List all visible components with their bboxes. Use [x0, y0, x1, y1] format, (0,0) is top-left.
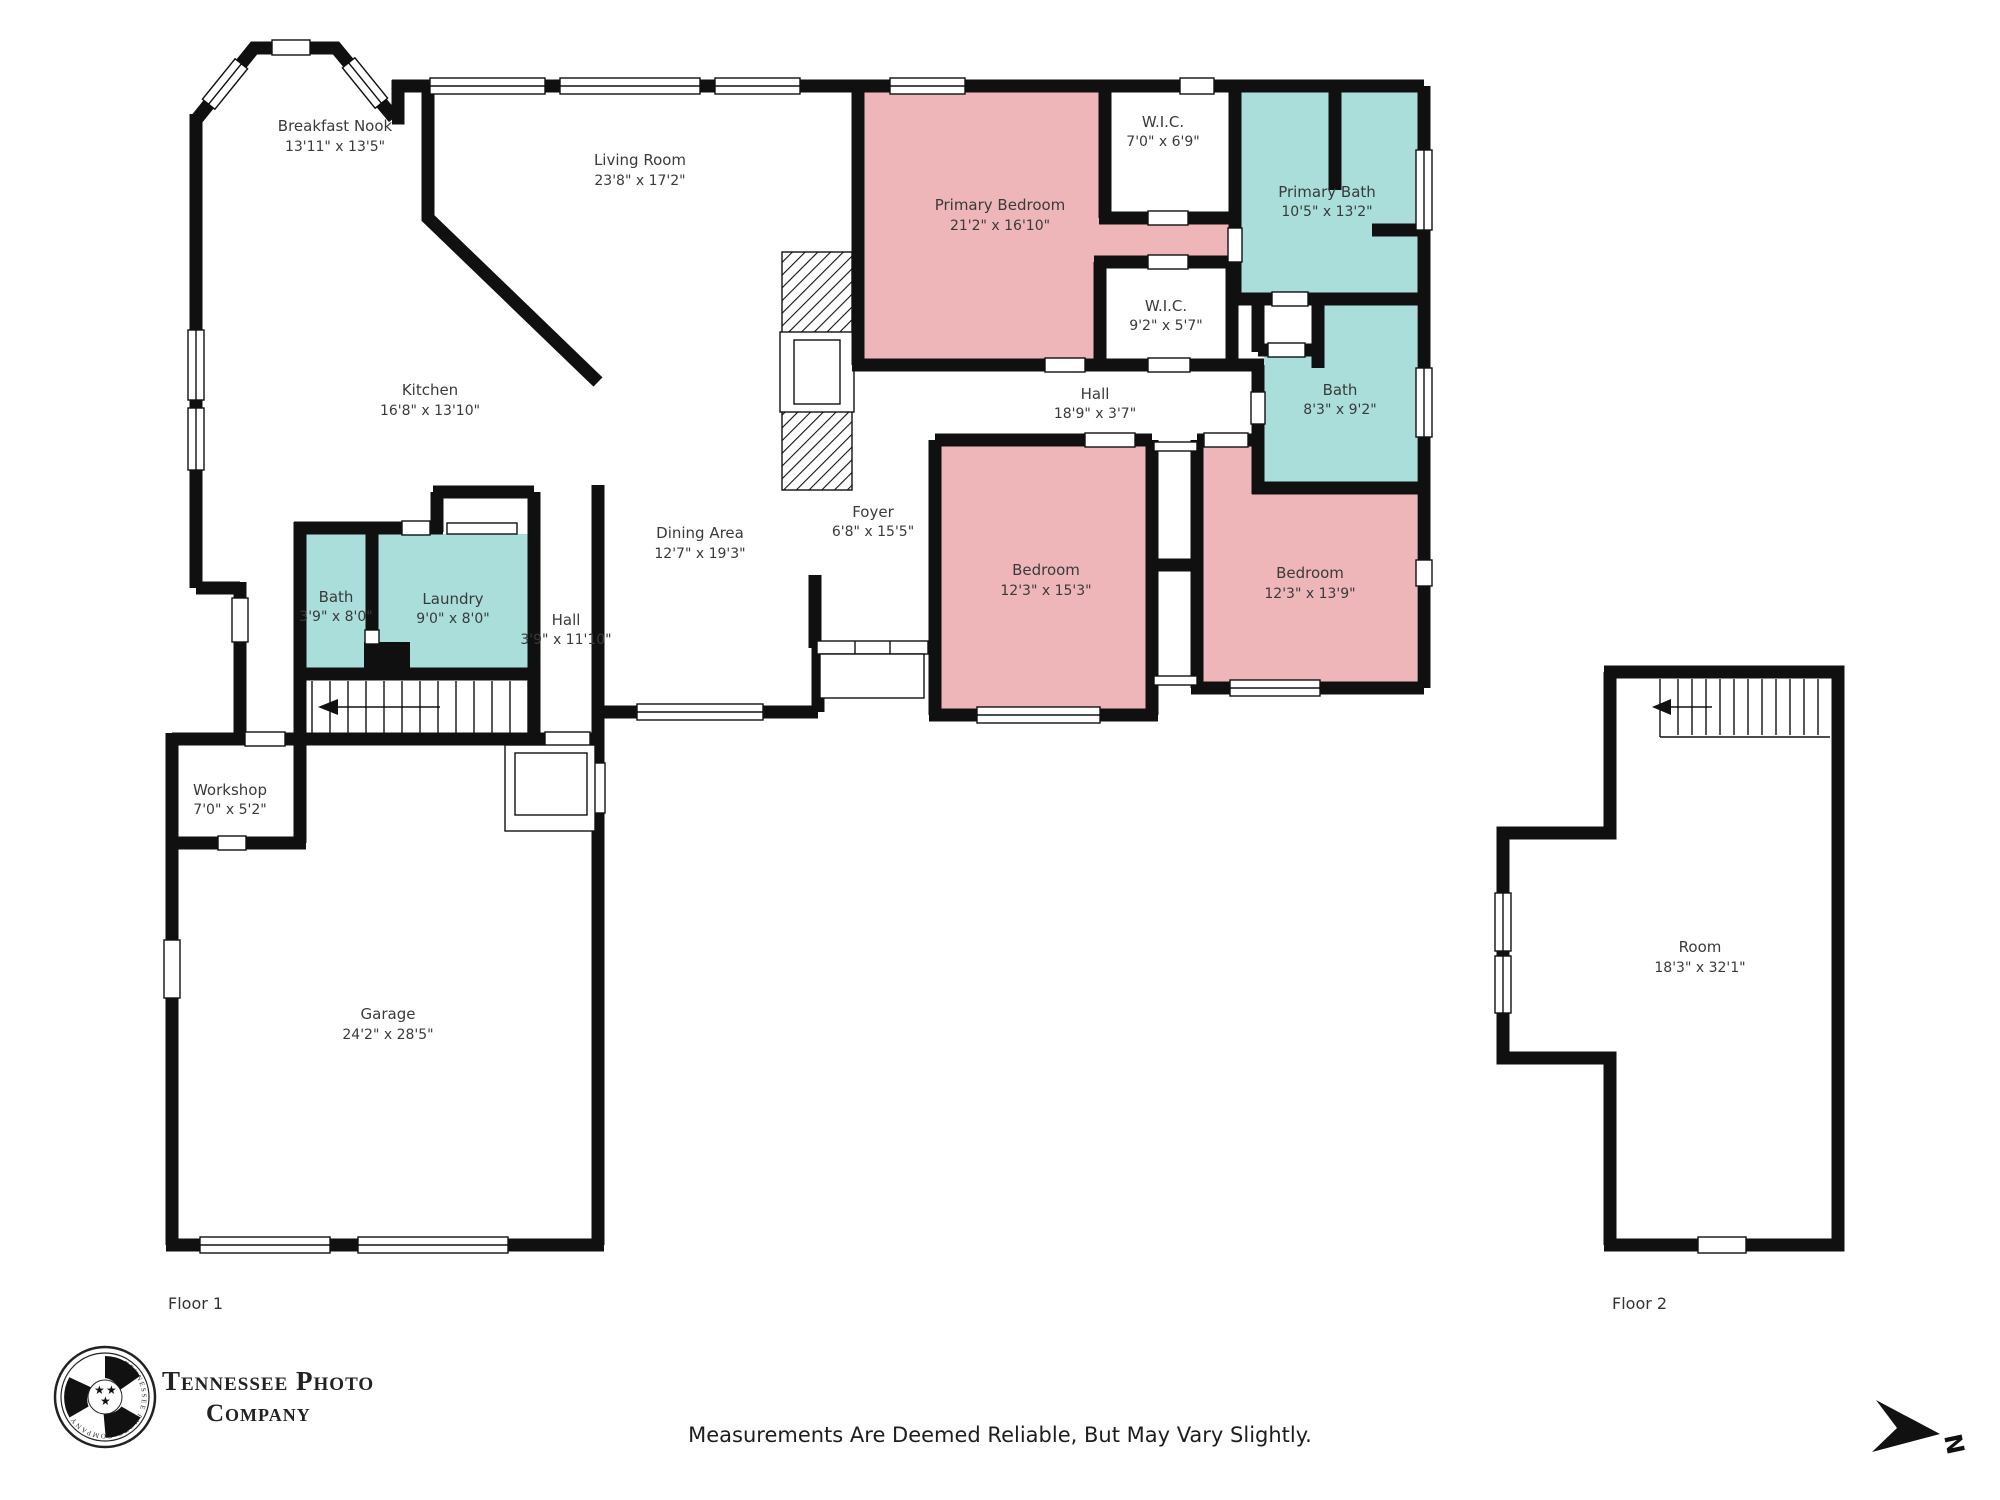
- room-dims: 18'9" x 3'7": [1054, 406, 1136, 422]
- stairs-floor1: [312, 681, 528, 733]
- star-icon: ★: [100, 1394, 111, 1408]
- room-dims: 8'3" x 9'2": [1303, 402, 1376, 418]
- room-label: Workshop: [193, 781, 267, 799]
- room-label: Breakfast Nook: [278, 117, 393, 135]
- room-dims: 21'2" x 16'10": [950, 218, 1050, 234]
- room-dims: 3'9" x 8'0": [299, 609, 372, 625]
- north-arrow: N: [1872, 1400, 1970, 1457]
- room-dims: 7'0" x 5'2": [193, 802, 266, 818]
- room-label: Bedroom: [1012, 561, 1080, 579]
- room-label: Foyer: [852, 503, 894, 521]
- room-dims: 23'8" x 17'2": [594, 173, 685, 189]
- floorplan-page: Breakfast Nook 13'11" x 13'5" Living Roo…: [0, 0, 2000, 1500]
- room-label: W.I.C.: [1145, 297, 1187, 315]
- room-dims: 6'8" x 15'5": [832, 524, 914, 540]
- logo-wordmark-line1: Tennessee Photo: [162, 1366, 374, 1396]
- room-label: Bath: [319, 588, 354, 606]
- room-dims: 12'3" x 13'9": [1264, 586, 1355, 602]
- north-arrow-icon: [1872, 1400, 1940, 1452]
- fireplace: [780, 252, 854, 490]
- room-dims: 18'3" x 32'1": [1654, 960, 1745, 976]
- disclaimer-text: Measurements Are Deemed Reliable, But Ma…: [688, 1423, 1312, 1447]
- room-label: Laundry: [422, 590, 483, 608]
- front-porch: [820, 654, 924, 698]
- room-label: Bath: [1323, 381, 1358, 399]
- room-label: W.I.C.: [1142, 113, 1184, 131]
- room-label: Living Room: [594, 151, 686, 169]
- company-logo: TENNESSEE PHOTO COMPANY ★ ★ ★ Tennessee …: [52, 1347, 374, 1448]
- room-label: Primary Bedroom: [935, 196, 1066, 214]
- room-dims: 12'3" x 15'3": [1000, 583, 1091, 599]
- garage-landing: [505, 745, 595, 831]
- room-dims: 16'8" x 13'10": [380, 403, 480, 419]
- floor1-label: Floor 1: [168, 1294, 223, 1313]
- floorplan-canvas: Breakfast Nook 13'11" x 13'5" Living Roo…: [0, 0, 2000, 1500]
- room-dims: 9'0" x 8'0": [416, 611, 489, 627]
- floor2-walls: [1503, 672, 1838, 1245]
- room-label: Dining Area: [656, 524, 744, 542]
- room-label: Hall: [1081, 385, 1110, 403]
- room-dims: 12'7" x 19'3": [654, 546, 745, 562]
- room-label: Room: [1679, 938, 1722, 956]
- room-dims: 10'5" x 13'2": [1281, 204, 1372, 220]
- room-dims: 7'0" x 6'9": [1126, 134, 1199, 150]
- room-dims: 13'11" x 13'5": [285, 139, 385, 155]
- north-label: N: [1938, 1431, 1970, 1456]
- room-dims: 9'2" x 5'7": [1129, 318, 1202, 334]
- stairs-floor2: [1652, 679, 1830, 737]
- logo-wordmark-line2: Company: [206, 1400, 311, 1427]
- room-label: Kitchen: [402, 381, 458, 399]
- room-label: Garage: [361, 1005, 416, 1023]
- floor2-label: Floor 2: [1612, 1294, 1667, 1313]
- room-label: Bedroom: [1276, 564, 1344, 582]
- room-dims: 24'2" x 28'5": [342, 1027, 433, 1043]
- room-label: Hall: [552, 611, 581, 629]
- room-label: Primary Bath: [1278, 183, 1376, 201]
- room-dims: 3'9" x 11'10": [520, 632, 611, 648]
